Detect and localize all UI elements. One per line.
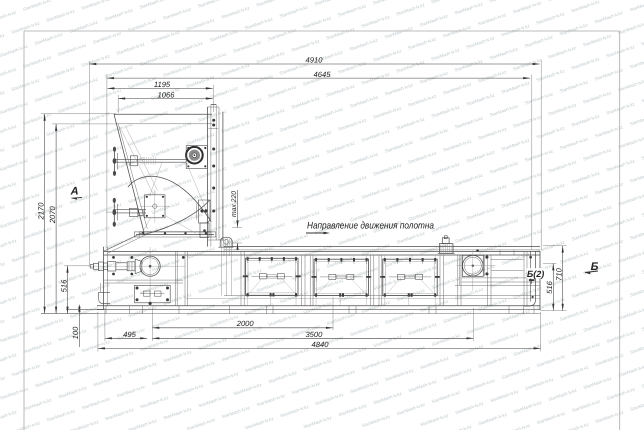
svg-text:3500: 3500: [305, 330, 323, 339]
svg-text:4840: 4840: [312, 340, 330, 349]
svg-text:2000: 2000: [236, 319, 255, 328]
svg-text:710: 710: [554, 267, 563, 280]
svg-text:1066: 1066: [158, 90, 176, 99]
svg-text:Направление движения полотна: Направление движения полотна: [307, 221, 434, 232]
svg-text:4645: 4645: [314, 70, 332, 79]
svg-text:495: 495: [123, 330, 136, 339]
svg-text:100: 100: [71, 326, 80, 339]
svg-text:1195: 1195: [154, 80, 171, 89]
svg-text:516: 516: [545, 280, 554, 293]
svg-text:2070: 2070: [48, 205, 57, 224]
svg-text:Б(2): Б(2): [527, 269, 544, 279]
svg-text:4910: 4910: [306, 56, 324, 65]
svg-text:516: 516: [59, 279, 68, 292]
svg-text:2170: 2170: [36, 202, 45, 221]
svg-text:А: А: [70, 186, 79, 198]
svg-text:max 220: max 220: [231, 191, 238, 217]
